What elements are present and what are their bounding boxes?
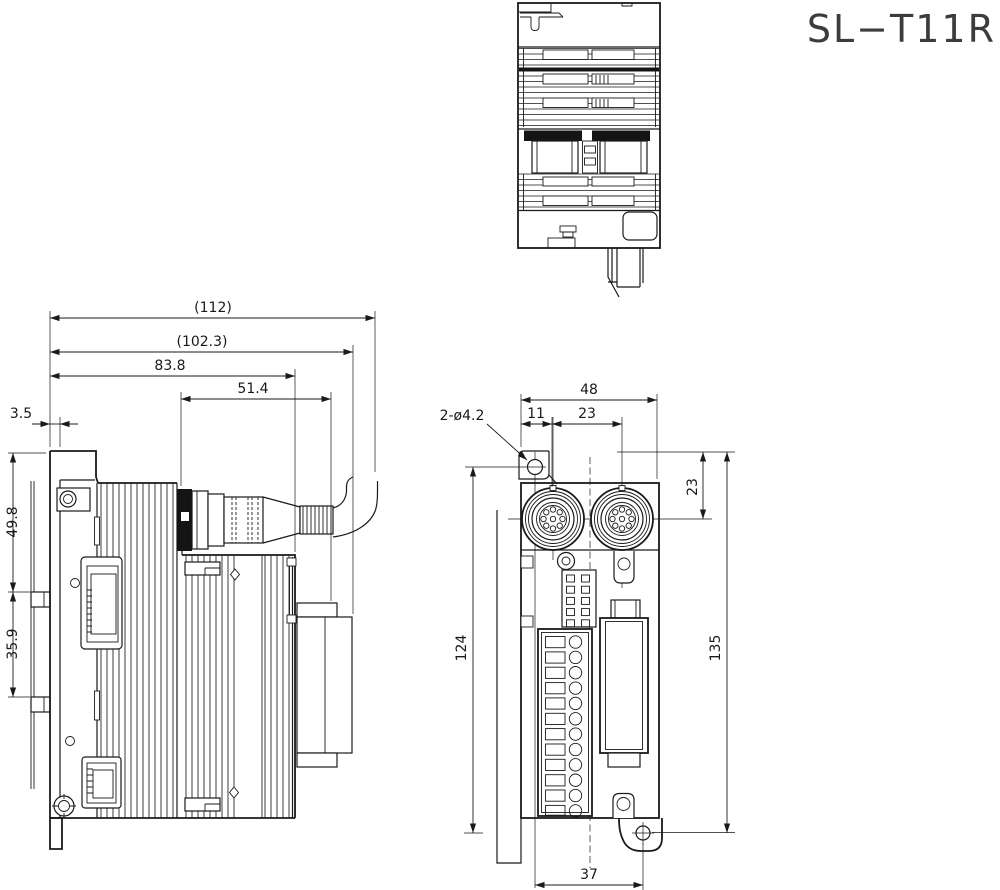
dim-side-body-depth: 83.8	[154, 358, 185, 374]
expansion-slot	[600, 600, 648, 767]
dim-front-mounting-holes: 2-ø4.2	[440, 408, 485, 424]
dim-front-body-width: 48	[580, 382, 598, 398]
top-view-drawing	[518, 3, 660, 297]
dim-side-plate-offset: 3.5	[10, 406, 32, 422]
dim-front-connector-from-top: 23	[685, 478, 701, 496]
dim-front-connector-pitch: 23	[578, 406, 596, 422]
side-view-drawing: (112) (102.3) 83.8 51.4 3.5 49.8 35.9	[5, 300, 378, 849]
dim-side-depth-with-cover: (102.3)	[176, 334, 227, 350]
drawing-title: SL−T11R	[807, 7, 996, 51]
front-view-drawing: 48 11 23 2-ø4.2 23 135 124 37	[440, 382, 735, 890]
dim-front-connector-offset: 11	[527, 406, 545, 422]
dim-side-connector-depth: 51.4	[237, 381, 268, 397]
dim-side-rail-to-top: 49.8	[5, 506, 21, 537]
dimension-drawing: SL−T11R	[0, 0, 1000, 890]
dim-side-rail-width: 35.9	[5, 628, 21, 659]
dim-side-overall-depth: (112)	[194, 300, 232, 316]
dim-front-hole-offset: 37	[580, 867, 598, 883]
dim-front-hole-pitch: 124	[454, 635, 470, 662]
drawing-sheet: SL−T11R	[0, 0, 1000, 890]
dim-front-overall-height: 135	[708, 635, 724, 662]
terminal-block	[538, 629, 592, 817]
dip-switch-block	[562, 570, 596, 627]
